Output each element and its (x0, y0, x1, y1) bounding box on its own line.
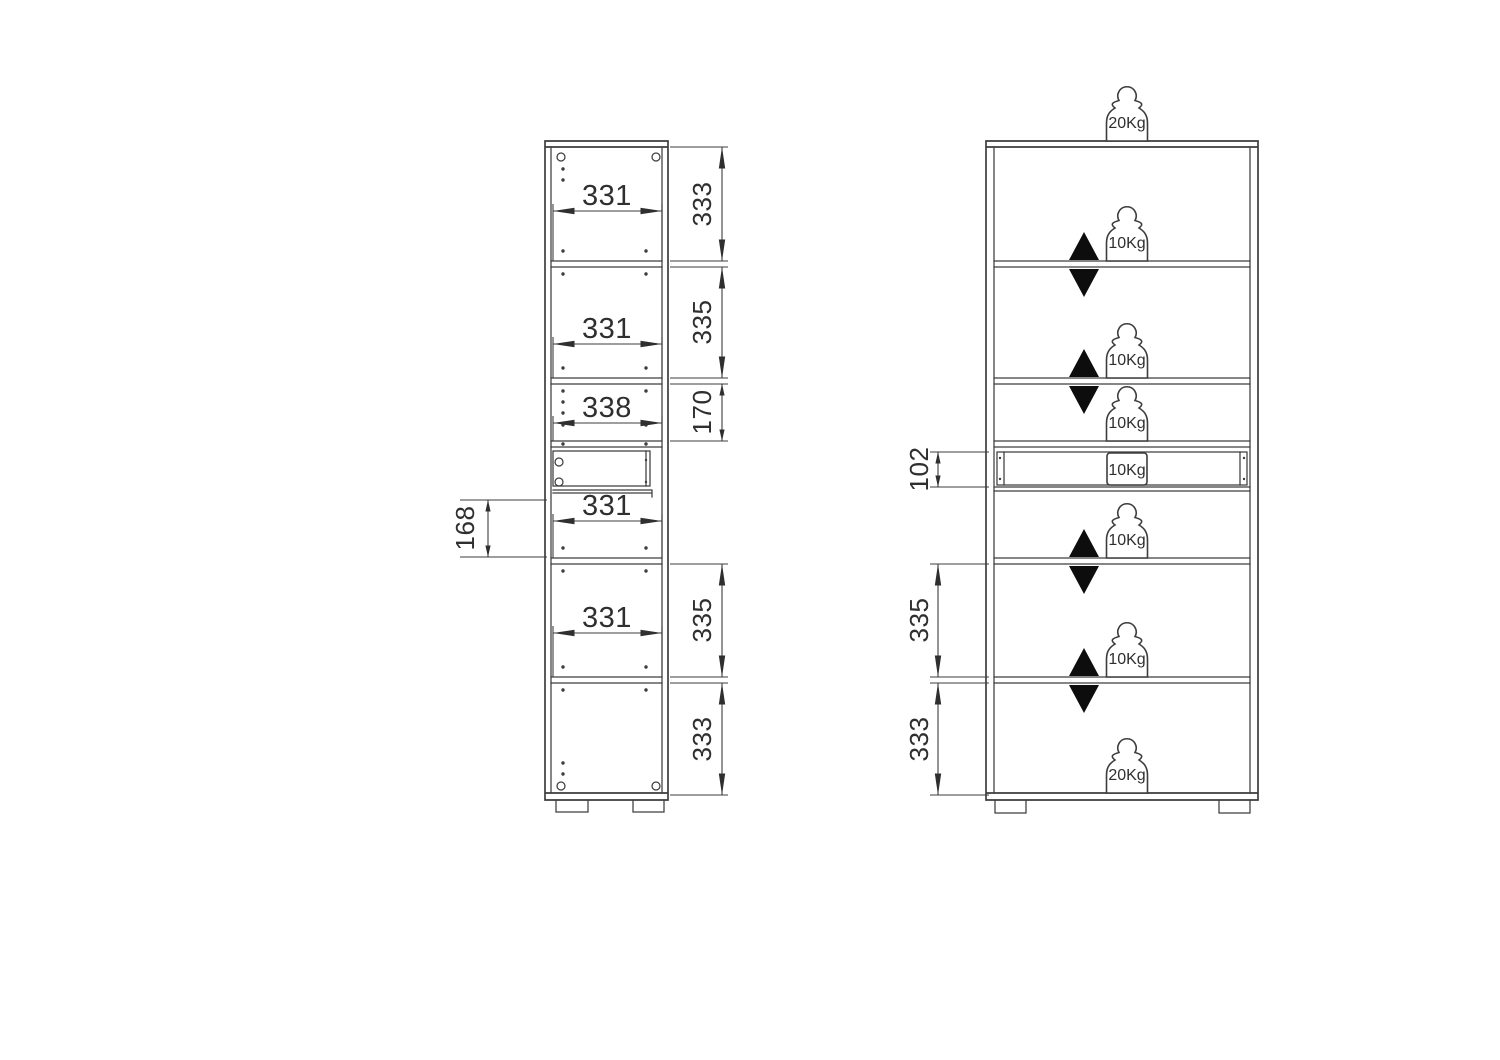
drawing-canvas: 331 331 338 331 331 333 (0, 0, 1500, 1060)
weight-shape (1107, 504, 1148, 558)
furniture-dimension-drawing: 331 331 338 331 331 333 (0, 0, 1500, 1060)
weight-icon: 20Kg (1107, 739, 1148, 793)
load-label: 10Kg (1108, 651, 1145, 668)
weight-shape (1107, 387, 1148, 441)
load-label: 10Kg (1108, 532, 1145, 549)
load-label: 10Kg (1108, 462, 1145, 479)
weight-icon: 20Kg (1107, 87, 1148, 141)
shelf-adjust-up-down-arrow-icon (1069, 529, 1099, 594)
drawer-position-dimension: 168 (450, 500, 547, 557)
load-label: 10Kg (1108, 352, 1145, 369)
feet (995, 800, 1250, 813)
dimension-label: 168 (450, 506, 480, 551)
weight-shape (1107, 207, 1148, 261)
width-dimension: 331 (553, 180, 662, 261)
height-dimension: 170 (687, 384, 722, 441)
extension-lines (930, 452, 989, 795)
front-section-view: 20Kg 10Kg 10Kg 10Kg 10Kg 10Kg 10Kg 20Kg (904, 87, 1258, 813)
weight-icon: 10Kg (1107, 504, 1148, 558)
shelf-adjust-up-down-arrow-icon (1069, 648, 1099, 713)
load-label: 20Kg (1108, 767, 1145, 784)
weight-shape (1107, 324, 1148, 378)
dimension-label: 331 (582, 490, 632, 522)
dimension-label: 333 (687, 717, 717, 762)
load-label: 20Kg (1108, 115, 1145, 132)
weight-icon-in-drawer: 10Kg (1107, 453, 1147, 485)
feet (556, 800, 664, 812)
shelf-adjust-up-down-arrow-icon (1069, 349, 1099, 414)
weight-icon: 10Kg (1107, 623, 1148, 677)
width-dimension: 338 (553, 392, 662, 441)
height-dimension: 335 (904, 564, 938, 677)
load-label: 10Kg (1108, 415, 1145, 432)
weight-icon: 10Kg (1107, 387, 1148, 441)
load-label: 10Kg (1108, 235, 1145, 252)
cabinet-inner-panel-lines (551, 147, 662, 793)
height-dimension: 102 (904, 447, 938, 492)
extension-lines (670, 147, 728, 795)
weight-shape (1107, 739, 1148, 793)
drawer-box (553, 451, 650, 486)
cam-hole (557, 782, 565, 790)
dimension-label: 102 (904, 447, 934, 492)
dimension-label: 335 (687, 598, 717, 643)
dimension-label: 333 (687, 182, 717, 227)
height-dimension: 335 (687, 564, 722, 677)
weight-icon: 10Kg (1107, 207, 1148, 261)
weight-shape (1107, 623, 1148, 677)
side-section-view: 331 331 338 331 331 333 (450, 141, 728, 812)
height-dimension: 333 (687, 683, 722, 795)
height-dimension: 333 (904, 683, 938, 795)
height-dimension: 335 (687, 267, 722, 378)
dimension-label: 333 (904, 717, 934, 762)
dimension-label: 338 (582, 392, 632, 424)
cam-hole (557, 153, 565, 161)
dimension-label: 335 (687, 300, 717, 345)
weight-shape (1107, 87, 1148, 141)
dimension-label: 335 (904, 598, 934, 643)
cam-lock-holes (557, 153, 660, 790)
height-dimension: 333 (687, 147, 722, 261)
dimension-label: 170 (687, 390, 717, 435)
drawer-screw-hole (555, 458, 563, 466)
cam-hole (652, 153, 660, 161)
dimension-label: 331 (582, 602, 632, 634)
weight-icon: 10Kg (1107, 324, 1148, 378)
shelf-adjust-up-down-arrow-icon (1069, 232, 1099, 297)
drawer-rail (994, 487, 1250, 491)
cam-hole (652, 782, 660, 790)
dimension-label: 331 (582, 180, 632, 212)
drawer-screw-hole (555, 478, 563, 486)
dimension-label: 331 (582, 313, 632, 345)
